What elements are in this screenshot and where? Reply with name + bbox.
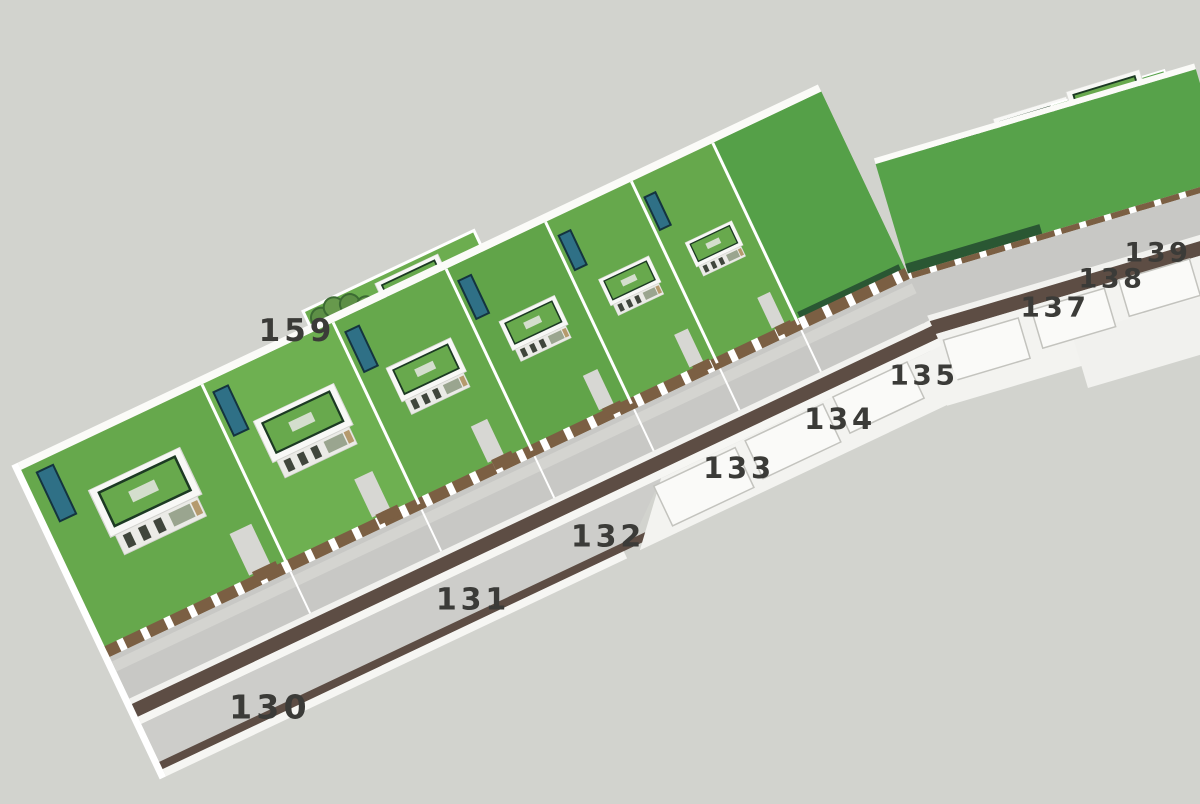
lot-label-135: 135 [889,359,958,392]
site-plan-page: { "scene": { "description": "3D aerial r… [0,0,1200,804]
site-plan-render [0,0,1200,804]
lot-label-132: 132 [571,520,645,555]
lot-label-159: 159 [259,313,336,349]
lot-label-133: 133 [703,451,775,485]
lot-label-130: 130 [229,688,311,727]
lot-label-139: 139 [1125,238,1192,269]
lot-label-131: 131 [436,583,510,618]
lot-label-137: 137 [1020,291,1089,324]
lot-label-134: 134 [804,402,876,436]
